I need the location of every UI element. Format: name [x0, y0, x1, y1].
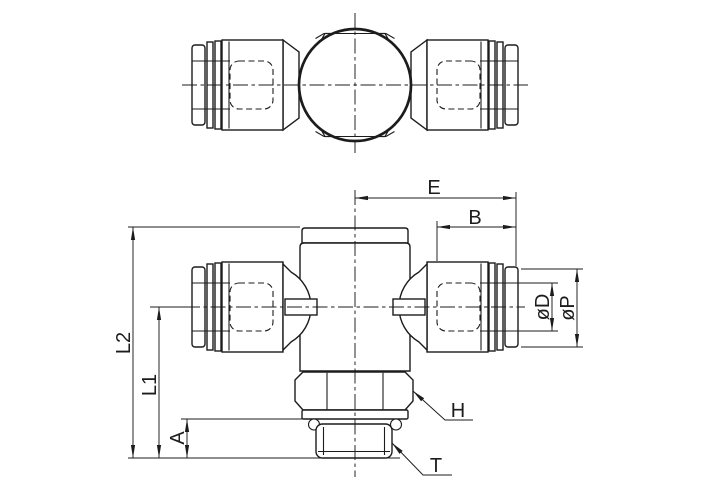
dimension-b: B	[437, 207, 516, 261]
front-view	[185, 190, 525, 477]
dim-label-a: A	[167, 431, 189, 445]
technical-drawing-canvas: E B øD øP	[0, 0, 707, 500]
threaded-stud	[316, 424, 392, 458]
dim-label-e: E	[427, 177, 440, 199]
arrowhead	[157, 307, 161, 320]
dimension-e: E	[355, 177, 516, 200]
dim-label-l1: L1	[139, 374, 161, 396]
arrowhead	[575, 334, 579, 347]
arrowhead	[413, 391, 424, 401]
arrowhead	[575, 269, 579, 282]
arrowhead	[131, 445, 135, 458]
arrowhead	[437, 225, 450, 229]
dim-label-diameter-p: øP	[557, 295, 579, 321]
arrowhead	[392, 443, 403, 454]
leader-t: T	[392, 443, 452, 477]
dim-label-l2: L2	[113, 332, 135, 354]
dim-label-t: T	[430, 455, 442, 477]
arrowhead	[131, 227, 135, 240]
hex-nut	[295, 372, 413, 410]
top-view	[182, 13, 528, 153]
arrowhead	[157, 445, 161, 458]
dimension-a: A	[167, 419, 313, 458]
drawing-page: E B øD øP	[0, 0, 707, 500]
arrowhead	[355, 196, 368, 200]
dim-label-h: H	[451, 400, 465, 422]
leader-h: H	[413, 391, 473, 422]
arrowhead	[503, 225, 516, 229]
dim-label-b: B	[468, 207, 481, 229]
arrowhead	[185, 445, 189, 458]
arrowhead	[185, 419, 189, 432]
arrowhead	[503, 196, 516, 200]
dim-label-diameter-d: øD	[532, 294, 554, 321]
